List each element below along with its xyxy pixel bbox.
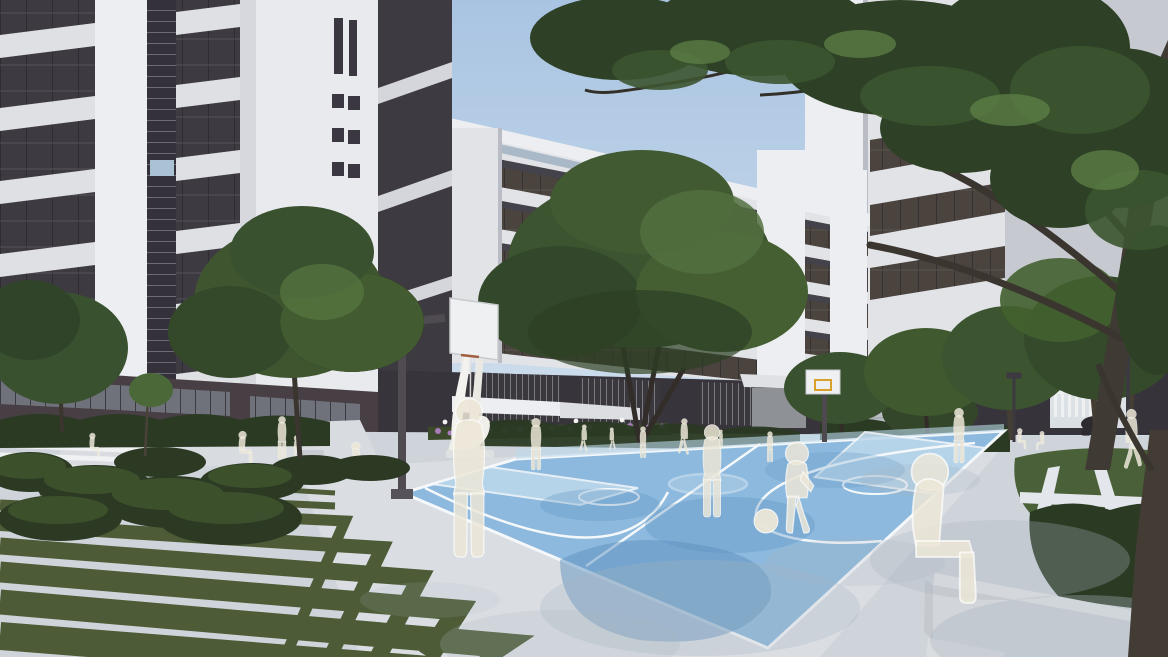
scene-canvas <box>0 0 1168 657</box>
ball <box>754 509 778 533</box>
architectural-rendering-viewport <box>0 0 1168 657</box>
